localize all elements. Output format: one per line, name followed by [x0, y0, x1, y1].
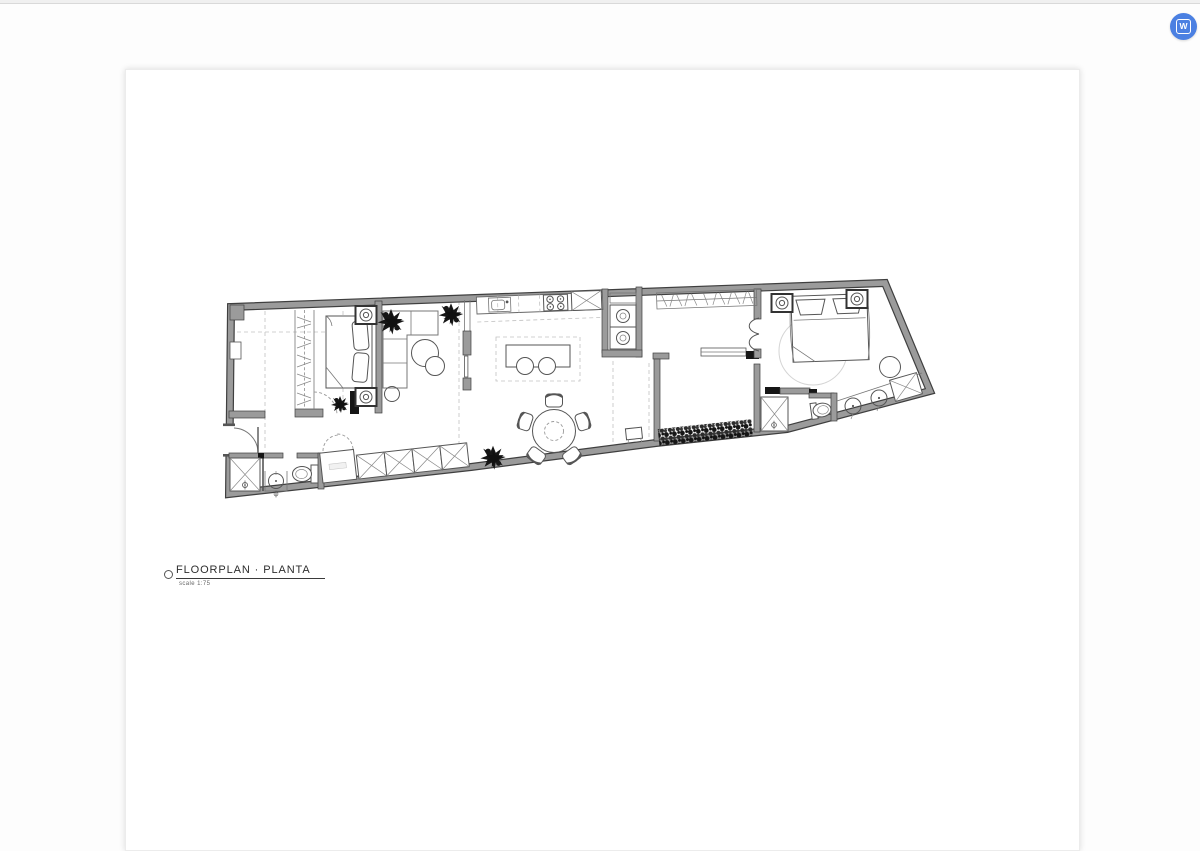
nightstand-lamp — [847, 290, 868, 308]
drawing-scale: scale 1:75 — [179, 581, 325, 587]
bedroom-left — [295, 306, 377, 415]
drawing-title: FLOORPLAN · PLANTA — [176, 564, 325, 579]
drawing-page: FLOORPLAN · PLANTA scale 1:75 — [125, 69, 1080, 851]
courtyard — [658, 419, 753, 446]
nightstand-lamp — [356, 388, 377, 406]
shower-stall — [761, 397, 788, 431]
w-logo-icon: W — [1176, 19, 1191, 34]
island-stool — [517, 358, 534, 375]
storage-box — [320, 449, 357, 483]
fridge-x — [571, 290, 602, 310]
island-stool — [539, 358, 556, 375]
hedge-planting — [658, 419, 753, 446]
side-table — [880, 357, 901, 378]
kitchen-island — [506, 345, 570, 367]
kitchen — [476, 290, 603, 381]
nightstand-lamp — [356, 306, 377, 324]
coffee-table — [426, 357, 445, 376]
dining-table — [533, 410, 576, 453]
construction-guides — [237, 301, 649, 463]
dryer-icon — [610, 327, 636, 349]
pouf — [385, 387, 400, 402]
bed-double — [326, 316, 376, 388]
shower-stall — [230, 458, 260, 491]
north-marker-icon — [164, 570, 173, 579]
utility-room — [610, 293, 636, 349]
dining-area — [480, 394, 591, 470]
entry-hall — [234, 427, 353, 453]
app-logo-button[interactable]: W — [1170, 13, 1197, 40]
nightstand-lamp — [772, 294, 793, 312]
plant-icon — [439, 303, 463, 327]
title-block: FLOORPLAN · PLANTA scale 1:75 — [164, 564, 325, 587]
plant-icon — [331, 396, 349, 414]
washer-icon — [610, 305, 636, 327]
french-doors — [749, 318, 759, 351]
living-room — [378, 303, 464, 401]
master-bedroom — [772, 290, 901, 385]
browser-top-strip — [0, 0, 1200, 4]
closet-hanging-rail — [295, 310, 314, 409]
toilet — [293, 465, 319, 483]
